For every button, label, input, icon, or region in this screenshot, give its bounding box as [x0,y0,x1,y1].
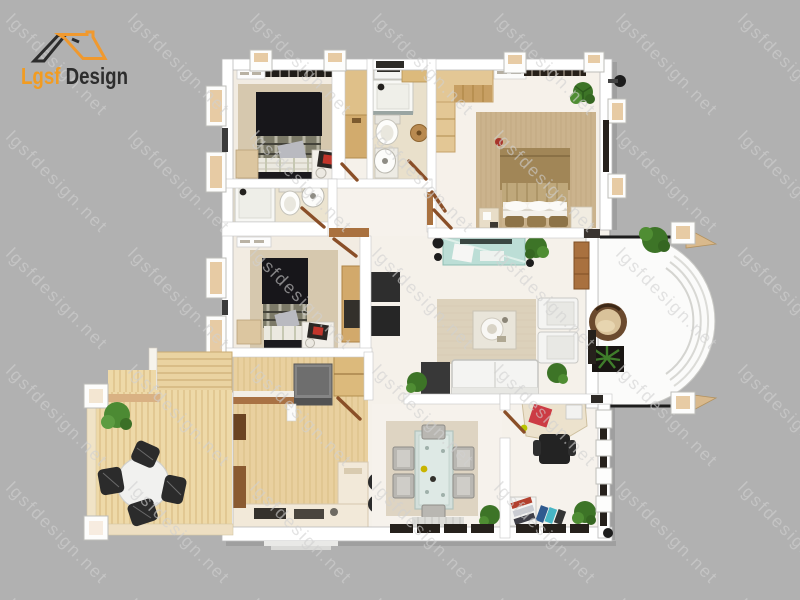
svg-text:Lgsf Design: Lgsf Design [21,63,128,89]
